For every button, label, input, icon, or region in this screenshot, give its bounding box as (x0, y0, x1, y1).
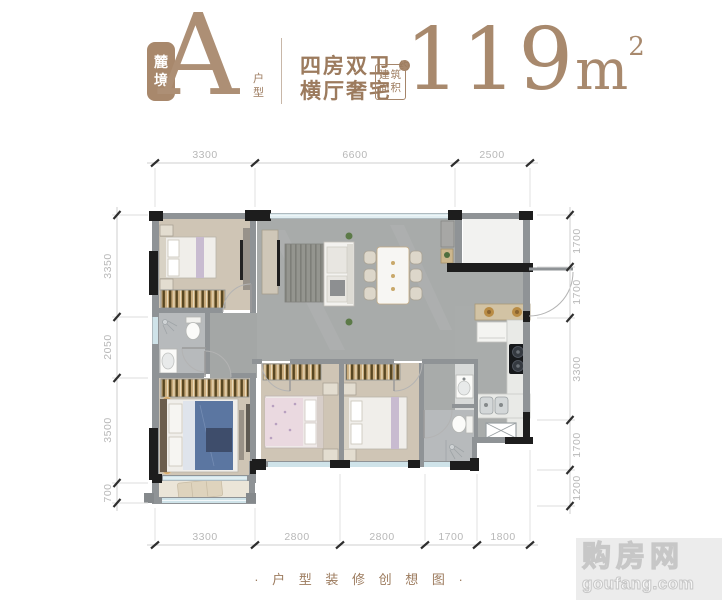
nightstand (160, 279, 173, 290)
toilet-tank (186, 317, 201, 323)
wardrobe (161, 290, 225, 308)
wardrobe (263, 364, 321, 380)
table-decor (391, 287, 395, 291)
dim-label: 3350 (102, 253, 114, 278)
nightstand (160, 225, 173, 236)
toilet-tank (466, 416, 473, 433)
dim-label: 700 (102, 483, 114, 502)
counter-knob-dot (487, 310, 491, 314)
entry-door-arc (529, 272, 573, 316)
bedroom-tv-console (243, 228, 251, 290)
dim-label: 2500 (479, 149, 504, 161)
dim-label: 2800 (369, 531, 394, 543)
pillow (168, 259, 179, 276)
sofa-cushion (327, 247, 347, 273)
watermark: 购房网 goufang.com (576, 538, 722, 600)
nightstand (323, 449, 338, 461)
dim-label: 1700 (571, 228, 583, 253)
table-decor (391, 261, 395, 265)
bed-sheet (183, 401, 195, 470)
bed-headboard (317, 396, 323, 448)
basin-bowl (458, 381, 470, 395)
pillow (168, 240, 179, 257)
dim-label: 2800 (284, 531, 309, 543)
bed-runner (196, 237, 204, 278)
counter-knob-dot (515, 310, 519, 314)
faucet-icon (463, 378, 466, 381)
shoe-cabinet (441, 221, 454, 247)
hallway-floor (424, 361, 455, 410)
bed-headboard (160, 399, 167, 472)
corridor-floor (210, 313, 257, 378)
pillow (305, 400, 316, 421)
plant-icon (444, 252, 450, 258)
plant-icon (346, 319, 353, 326)
dim-label: 1700 (571, 279, 583, 304)
toilet-icon (452, 416, 466, 433)
pillow (305, 423, 316, 444)
fridge (477, 322, 507, 342)
table-decor (391, 274, 395, 278)
floorplan-drawing: 3300 6600 2500 3300 2800 2800 1700 1800 … (0, 0, 722, 600)
rug (285, 244, 323, 302)
living-tv-console (262, 230, 278, 294)
plant-icon (346, 233, 353, 240)
watermark-domain: goufang.com (582, 574, 722, 594)
floorplan-page: 麓 境 A 户 型 四房双卫 横厅奢宅 建筑 面积 约 119 m 2 (0, 0, 722, 600)
bed-headboard (160, 237, 166, 278)
tv-icon (277, 240, 280, 286)
bed-bench (239, 410, 244, 460)
wardrobe (346, 364, 400, 380)
burner-dot (516, 350, 520, 354)
dim-label: 1200 (571, 475, 583, 500)
dim-label: 1700 (571, 432, 583, 457)
dim-label: 3300 (571, 356, 583, 381)
tv-icon (240, 240, 243, 280)
entry-porch-floor (463, 215, 523, 263)
pillow (169, 404, 182, 433)
dim-label: 3300 (192, 149, 217, 161)
sink-drain (499, 403, 503, 407)
wardrobe (161, 379, 249, 397)
sofa-throw (330, 280, 345, 296)
bed-runner (391, 397, 399, 449)
pillow (169, 437, 182, 466)
dim-label: 1700 (438, 531, 463, 543)
basin-bowl (162, 353, 174, 369)
bed-throw (206, 428, 232, 452)
dim-label: 1800 (490, 531, 515, 543)
equipment-platform (486, 423, 516, 438)
dim-label: 2050 (102, 334, 114, 359)
watermark-logo: 购房网 (582, 540, 722, 574)
dim-label: 3300 (192, 531, 217, 543)
dim-label: 3500 (102, 417, 114, 442)
burner-dot (516, 364, 520, 368)
entry-hall-floor (447, 272, 525, 306)
toilet-icon (186, 323, 200, 340)
sofa-back (347, 244, 353, 304)
sink-drain (484, 403, 488, 407)
nightstand (323, 383, 338, 395)
pillow (351, 424, 362, 444)
dim-label: 6600 (342, 149, 367, 161)
pillow (351, 401, 362, 421)
